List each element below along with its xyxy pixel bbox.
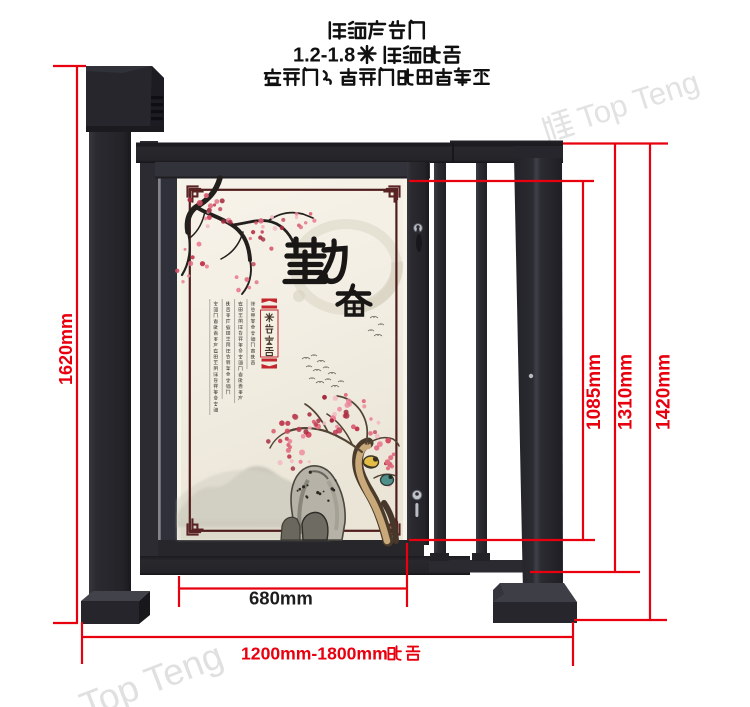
svg-text:1420mm: 1420mm xyxy=(654,354,675,430)
svg-text:1620mm: 1620mm xyxy=(56,313,76,385)
svg-text:1085mm: 1085mm xyxy=(584,354,605,430)
svg-text:Top Teng: Top Teng xyxy=(573,64,703,136)
svg-text:1200mm-1800mm: 1200mm-1800mm xyxy=(241,644,388,664)
svg-text:1.2-1.8: 1.2-1.8 xyxy=(293,45,355,67)
svg-text:1310mm: 1310mm xyxy=(616,354,637,430)
svg-text:Top Teng: Top Teng xyxy=(74,635,228,707)
svg-text:680mm: 680mm xyxy=(249,588,313,609)
